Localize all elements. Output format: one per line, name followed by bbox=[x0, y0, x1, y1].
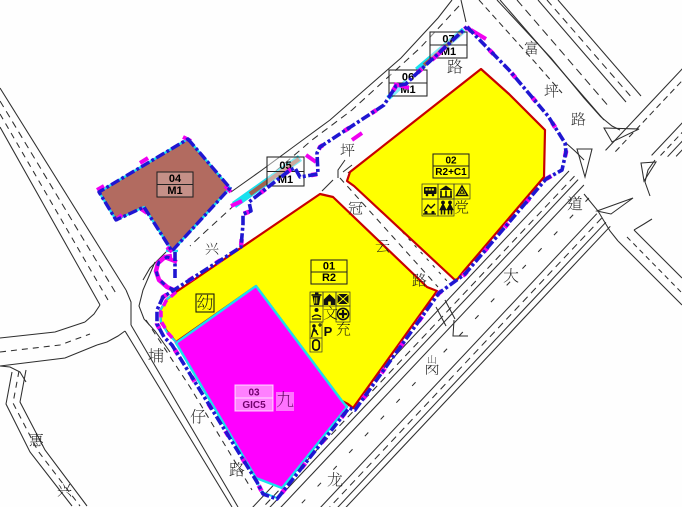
svg-text:03: 03 bbox=[248, 388, 260, 399]
svg-text:GIC5: GIC5 bbox=[242, 400, 266, 411]
svg-text:02: 02 bbox=[445, 156, 457, 167]
svg-text:06: 06 bbox=[402, 72, 414, 84]
svg-text:P: P bbox=[324, 324, 333, 339]
svg-text:R2: R2 bbox=[322, 272, 336, 284]
svg-text:M1: M1 bbox=[278, 174, 293, 186]
svg-text:04: 04 bbox=[169, 173, 182, 185]
svg-text:01: 01 bbox=[323, 261, 335, 273]
svg-text:M1: M1 bbox=[167, 185, 182, 197]
svg-text:R2+C1: R2+C1 bbox=[435, 167, 467, 178]
